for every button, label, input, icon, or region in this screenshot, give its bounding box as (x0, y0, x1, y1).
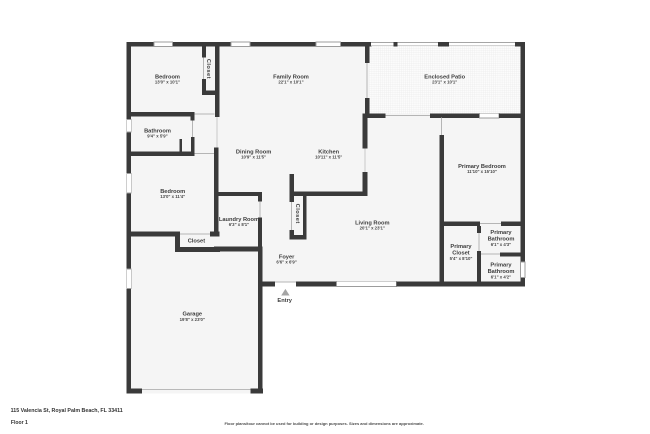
svg-text:20'1" x 23'1": 20'1" x 23'1" (360, 225, 385, 230)
svg-text:Entry: Entry (277, 298, 292, 304)
svg-text:11'10" x 15'10": 11'10" x 15'10" (467, 169, 497, 174)
svg-text:9'4" x 5'9": 9'4" x 5'9" (147, 133, 167, 138)
svg-text:19'8" x 23'0": 19'8" x 23'0" (180, 317, 205, 322)
svg-text:6'1" x 4'2": 6'1" x 4'2" (491, 274, 511, 279)
svg-text:Closet: Closet (294, 204, 300, 224)
svg-text:23'1" x 10'1": 23'1" x 10'1" (432, 80, 457, 85)
svg-text:10'11" x 11'5": 10'11" x 11'5" (315, 154, 342, 159)
svg-text:Primary: Primary (490, 230, 512, 236)
svg-text:Primary: Primary (450, 244, 472, 250)
svg-text:6'3" x 8'1": 6'3" x 8'1" (229, 222, 249, 227)
svg-text:22'1" x 10'1": 22'1" x 10'1" (278, 80, 303, 85)
svg-text:6'6" x 6'9": 6'6" x 6'9" (276, 260, 296, 265)
svg-text:10'9" x 11'5": 10'9" x 11'5" (241, 154, 266, 159)
svg-text:13'0" x 10'1": 13'0" x 10'1" (155, 80, 180, 85)
svg-text:Primary: Primary (490, 263, 512, 269)
svg-text:13'0" x 11'4": 13'0" x 11'4" (160, 194, 185, 199)
svg-text:Closet: Closet (188, 239, 205, 245)
svg-text:5'4" x 8'10": 5'4" x 8'10" (450, 256, 473, 261)
svg-text:Closet: Closet (205, 59, 211, 79)
svg-text:6'1" x 4'3": 6'1" x 4'3" (491, 242, 511, 247)
